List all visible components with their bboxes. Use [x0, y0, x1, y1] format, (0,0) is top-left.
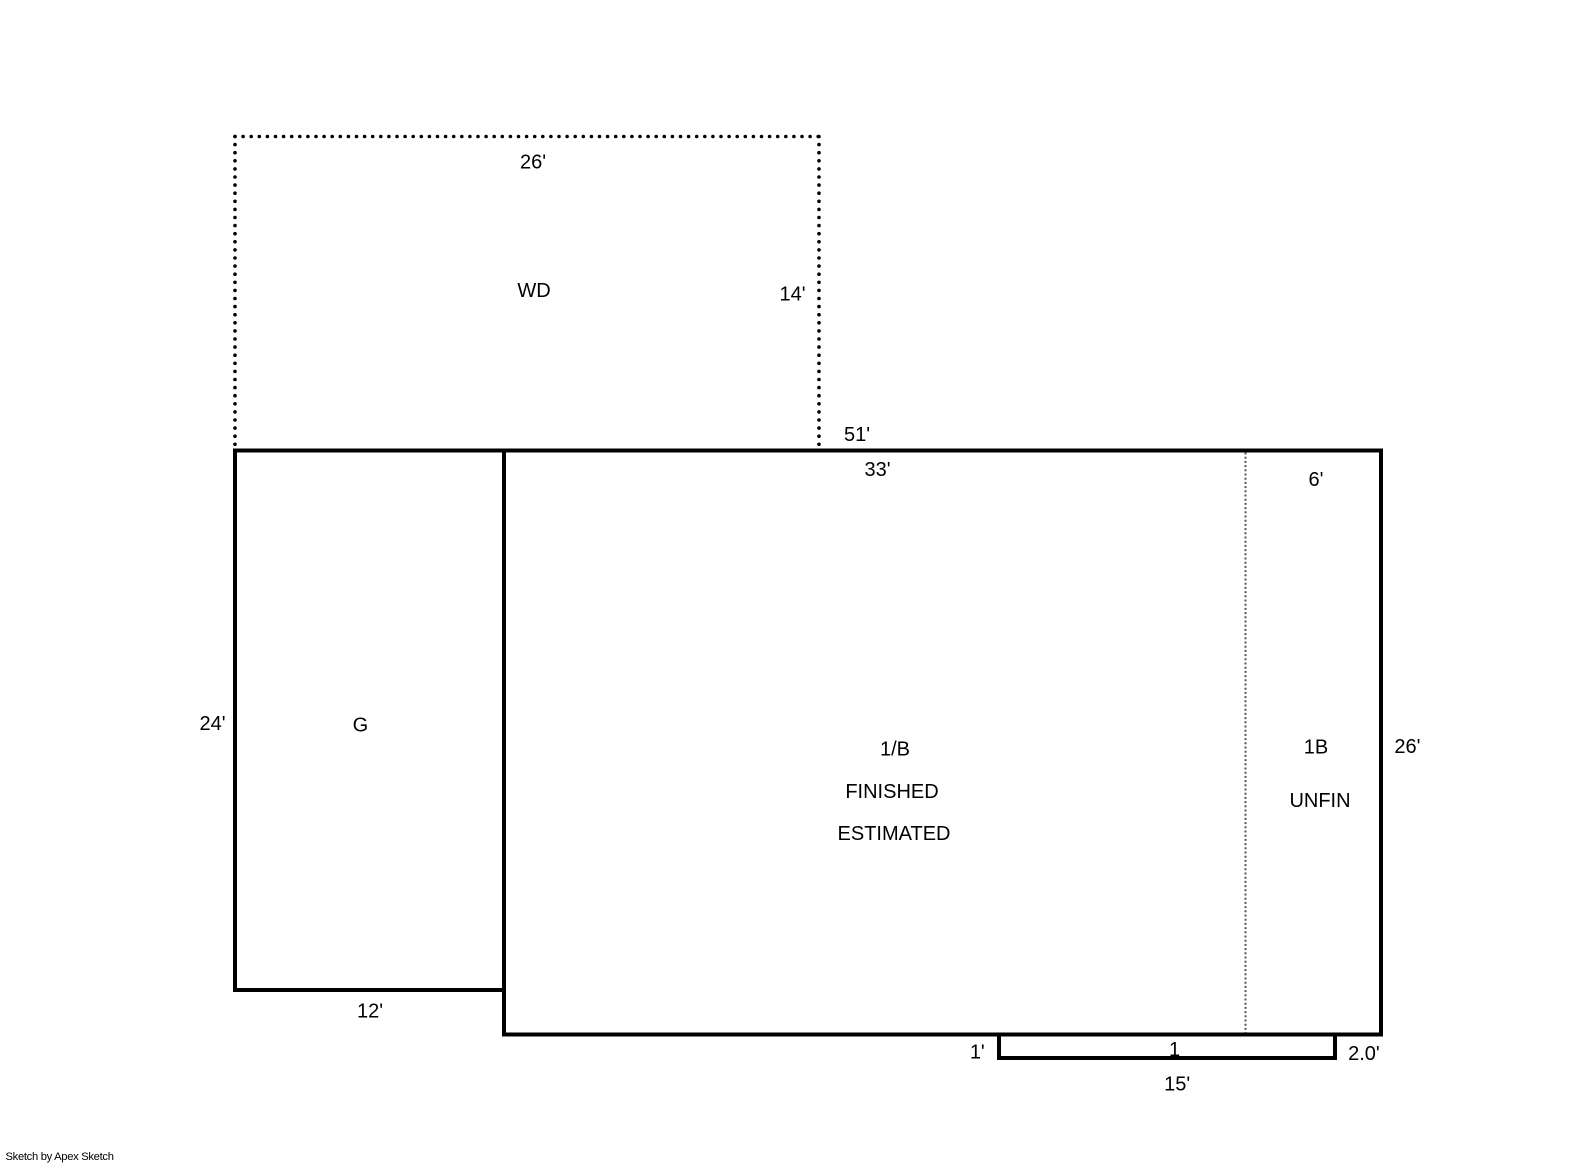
- svg-text:1: 1: [1169, 1039, 1180, 1061]
- svg-text:24': 24': [199, 713, 225, 735]
- svg-text:6': 6': [1309, 469, 1324, 491]
- svg-text:Sketch by Apex Sketch: Sketch by Apex Sketch: [6, 1151, 114, 1163]
- svg-text:12': 12': [357, 1001, 383, 1023]
- svg-text:FINISHED: FINISHED: [845, 781, 938, 803]
- svg-text:ESTIMATED: ESTIMATED: [838, 823, 951, 845]
- svg-text:26': 26': [520, 151, 546, 173]
- svg-text:51': 51': [844, 424, 870, 446]
- svg-text:G: G: [353, 715, 369, 737]
- svg-text:15': 15': [1164, 1073, 1190, 1095]
- svg-text:33': 33': [864, 459, 890, 481]
- svg-text:2.0': 2.0': [1348, 1043, 1380, 1065]
- svg-text:26': 26': [1394, 736, 1420, 758]
- svg-text:1': 1': [970, 1042, 985, 1064]
- svg-text:1B: 1B: [1304, 736, 1328, 758]
- svg-text:WD: WD: [517, 280, 550, 302]
- svg-text:UNFIN: UNFIN: [1289, 790, 1350, 812]
- svg-text:1/B: 1/B: [880, 739, 910, 761]
- svg-text:14': 14': [780, 284, 806, 306]
